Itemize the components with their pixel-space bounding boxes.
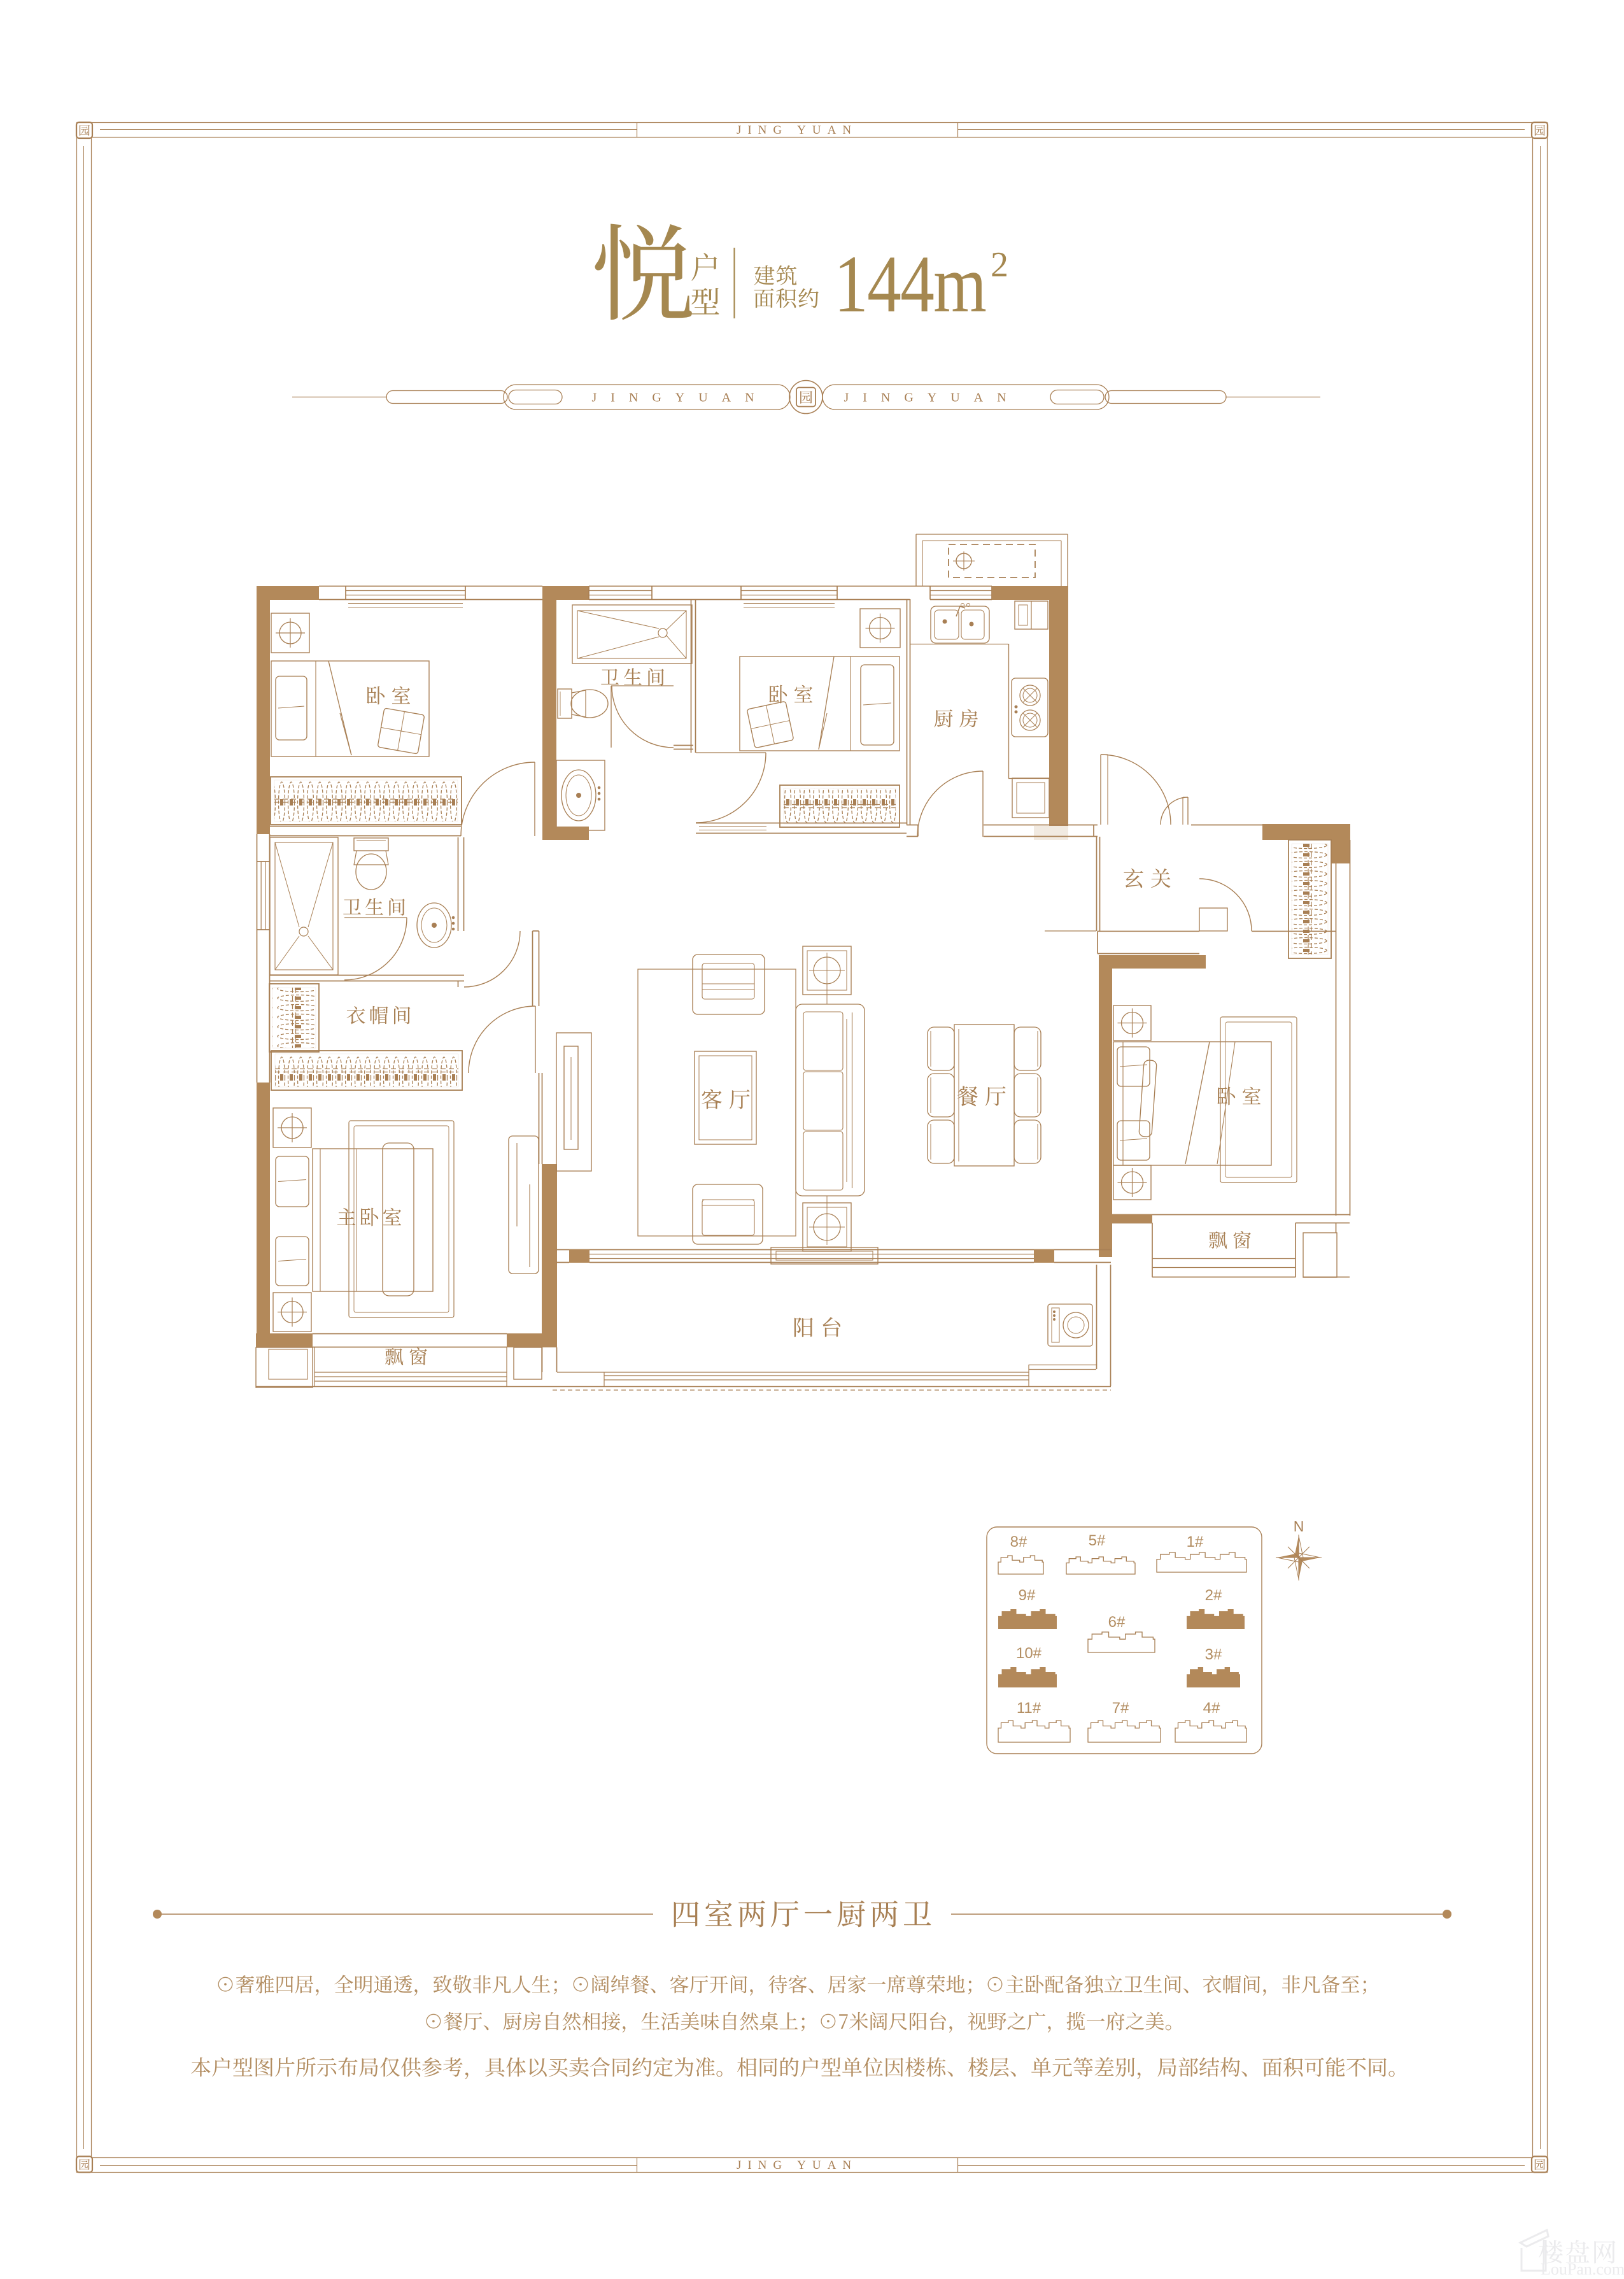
svg-text:JINGYUAN: JINGYUAN: [844, 391, 1020, 405]
svg-text:2: 2: [991, 245, 1008, 285]
svg-text:JING YUAN: JING YUAN: [737, 2159, 858, 2172]
svg-text:10#: 10#: [1016, 1645, 1042, 1662]
svg-text:7#: 7#: [1112, 1700, 1129, 1717]
svg-text:1#: 1#: [1187, 1533, 1204, 1551]
svg-text:N: N: [1294, 1518, 1304, 1535]
svg-text:3#: 3#: [1205, 1646, 1222, 1663]
svg-text:6#: 6#: [1108, 1614, 1126, 1631]
svg-text:2#: 2#: [1205, 1587, 1222, 1604]
svg-text:5#: 5#: [1089, 1532, 1106, 1549]
svg-text:8#: 8#: [1010, 1533, 1027, 1551]
svg-text:JING YUAN: JING YUAN: [737, 124, 858, 137]
svg-text:JINGYUAN: JINGYUAN: [591, 391, 768, 405]
svg-text:4#: 4#: [1203, 1700, 1220, 1717]
svg-text:LouPan.com: LouPan.com: [1541, 2260, 1624, 2278]
svg-text:9#: 9#: [1019, 1587, 1036, 1604]
svg-text:144m: 144m: [834, 239, 986, 329]
svg-text:11#: 11#: [1017, 1700, 1041, 1717]
